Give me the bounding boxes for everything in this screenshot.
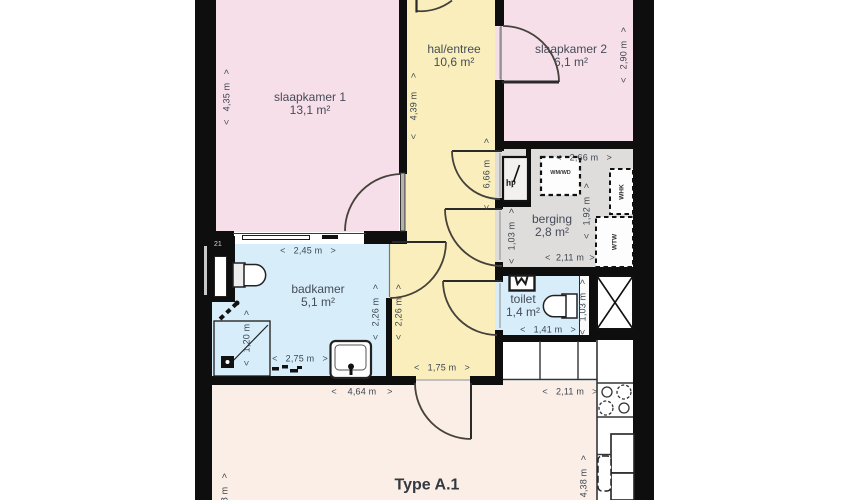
svg-text:hp: hp <box>505 177 517 189</box>
